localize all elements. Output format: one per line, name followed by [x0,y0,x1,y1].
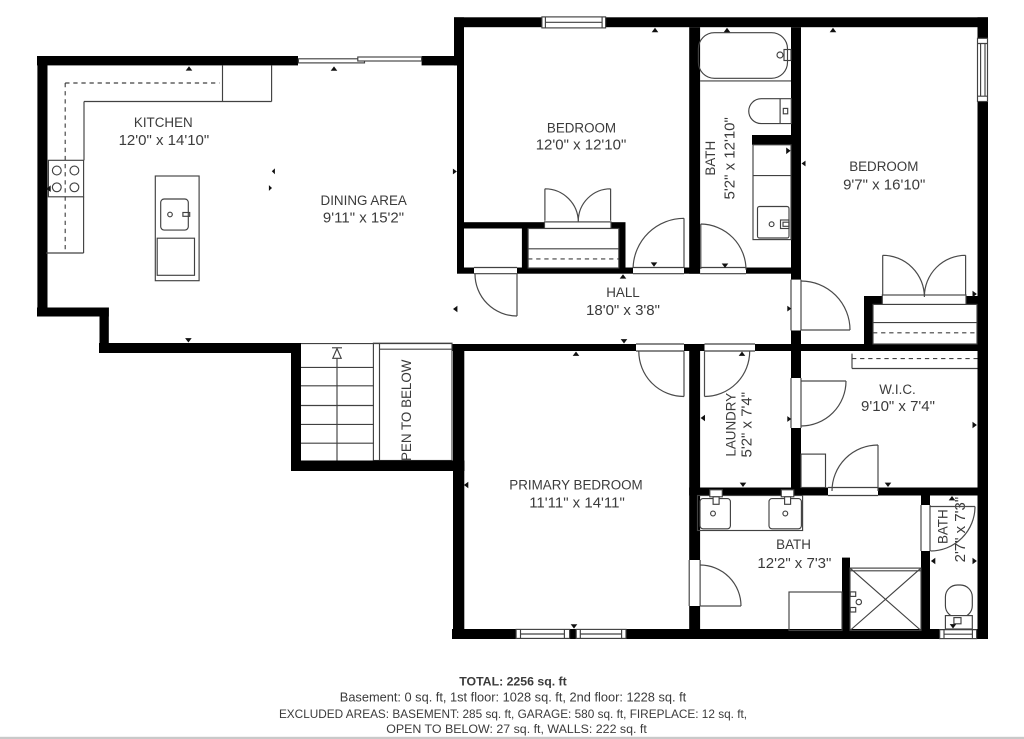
svg-text:HALL: HALL [606,285,640,300]
svg-text:TOTAL: 2256 sq. ft: TOTAL: 2256 sq. ft [459,675,567,689]
svg-text:12'0" x 14'10": 12'0" x 14'10" [119,132,210,149]
svg-text:9'10" x 7'4": 9'10" x 7'4" [861,398,935,415]
svg-text:9'7" x 16'10": 9'7" x 16'10" [843,176,925,193]
svg-text:EXCLUDED AREAS: BASEMENT: 285: EXCLUDED AREAS: BASEMENT: 285 sq. ft, GA… [279,707,747,721]
svg-text:BEDROOM: BEDROOM [849,159,918,174]
svg-text:DINING AREA: DINING AREA [321,193,407,208]
svg-text:BATH: BATH [776,537,811,552]
svg-text:OPEN TO BELOW: 27 sq. ft, WALL: OPEN TO BELOW: 27 sq. ft, WALLS: 222 sq.… [386,722,647,736]
svg-text:BATH: BATH [935,509,950,544]
svg-text:W.I.C.: W.I.C. [879,382,915,397]
svg-text:OPEN TO BELOW: OPEN TO BELOW [399,359,414,471]
svg-text:9'11" x 15'2": 9'11" x 15'2" [323,209,404,226]
svg-text:12'2" x 7'3": 12'2" x 7'3" [757,555,831,572]
svg-text:BEDROOM: BEDROOM [547,120,616,135]
svg-text:PRIMARY BEDROOM: PRIMARY BEDROOM [509,477,642,492]
svg-text:12'0" x 12'10": 12'0" x 12'10" [536,137,627,154]
svg-text:BATH: BATH [703,141,718,176]
svg-text:5'2" x 7'4": 5'2" x 7'4" [738,392,755,458]
svg-text:Basement: 0 sq. ft, 1st floor:: Basement: 0 sq. ft, 1st floor: 1028 sq. … [340,690,687,705]
svg-text:18'0" x 3'8": 18'0" x 3'8" [586,302,660,319]
svg-text:5'2" x 12'10": 5'2" x 12'10" [722,117,739,199]
svg-text:11'11" x 14'11": 11'11" x 14'11" [529,494,625,511]
svg-text:LAUNDRY: LAUNDRY [724,393,739,457]
svg-text:KITCHEN: KITCHEN [134,115,193,130]
